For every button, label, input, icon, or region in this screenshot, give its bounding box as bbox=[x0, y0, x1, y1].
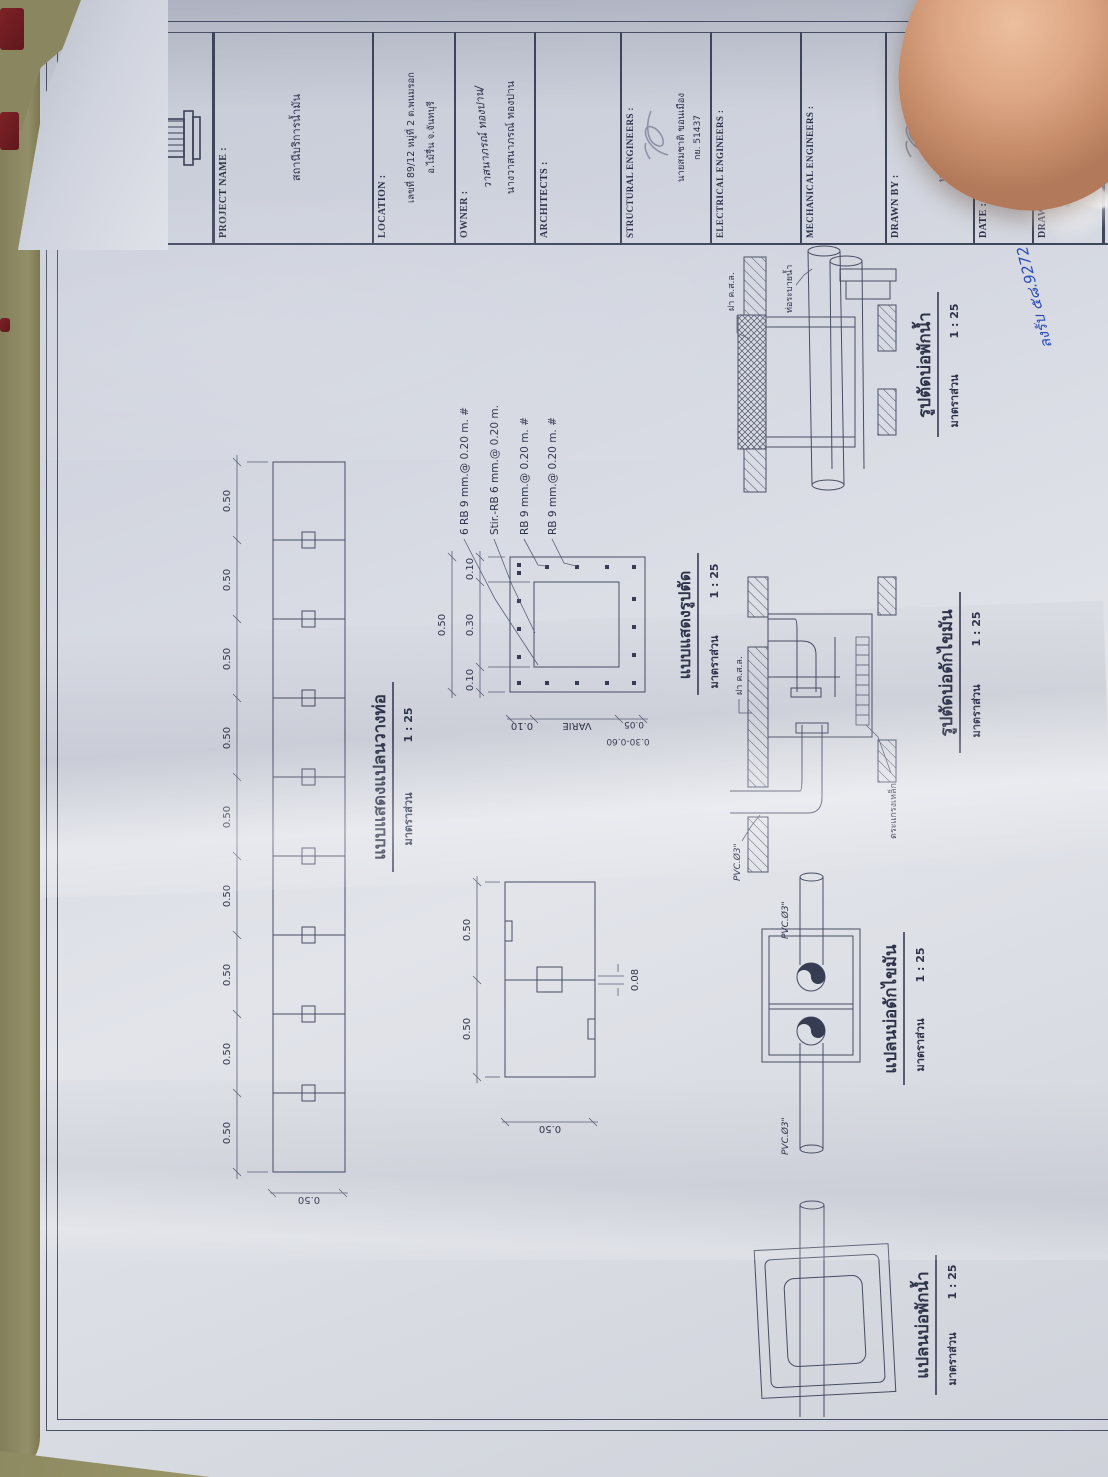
svg-text:RB 9 mm.@ 0.20 m. #: RB 9 mm.@ 0.20 m. # bbox=[519, 417, 531, 535]
svg-text:0.50: 0.50 bbox=[437, 614, 448, 636]
handwritten-note: ลงรับ ๕๘.9272 bbox=[1013, 244, 1056, 350]
svg-text:0.50: 0.50 bbox=[222, 569, 233, 591]
red-object-on-table bbox=[0, 112, 19, 150]
svg-text:0.10: 0.10 bbox=[511, 720, 533, 731]
svg-text:ฝา ค.ส.ล.: ฝา ค.ส.ล. bbox=[735, 656, 745, 695]
figure-sump-section: ฝา ค.ส.ล. ท่อระบายน้ำ รูปตัดบ่อพักน้ำ มา… bbox=[727, 246, 961, 492]
photo-of-drawing: PROJECT NAME : สถานีบริการน้ำมัน LOCATIO… bbox=[0, 0, 1108, 1477]
svg-text:0.50: 0.50 bbox=[298, 1194, 320, 1205]
svg-text:Stir.-RB 6 mm.@ 0.20 m.: Stir.-RB 6 mm.@ 0.20 m. bbox=[489, 405, 501, 535]
svg-text:แบบแสดงรูปตัด: แบบแสดงรูปตัด bbox=[675, 571, 696, 679]
svg-text:1 : 25: 1 : 25 bbox=[970, 611, 983, 646]
svg-text:ตระแกรงเหล็ก: ตระแกรงเหล็ก bbox=[886, 783, 899, 839]
svg-text:แบบแสดงแปลนวางท่อ: แบบแสดงแปลนวางท่อ bbox=[370, 694, 390, 860]
svg-text:0.05: 0.05 bbox=[624, 719, 644, 729]
svg-text:0.50: 0.50 bbox=[222, 727, 233, 749]
svg-text:ฝา ค.ส.ล.: ฝา ค.ส.ล. bbox=[727, 272, 737, 311]
svg-text:PVC.Ø3": PVC.Ø3" bbox=[732, 843, 743, 881]
figure-sump-plan: แปลนบ่อพักน้ำ มาตราส่วน 1 : 25 bbox=[754, 1201, 959, 1417]
steel-grating bbox=[856, 637, 869, 725]
rebar-callouts: 6 RB 9 mm.@ 0.20 m. # Stir.-RB 6 mm.@ 0.… bbox=[459, 405, 576, 665]
svg-text:ท่อระบายน้ำ: ท่อระบายน้ำ bbox=[782, 265, 795, 313]
svg-text:แปลนบ่อพักน้ำ: แปลนบ่อพักน้ำ bbox=[909, 1271, 933, 1378]
svg-text:0.08: 0.08 bbox=[630, 969, 641, 991]
svg-text:0.50: 0.50 bbox=[222, 490, 233, 512]
svg-text:0.50: 0.50 bbox=[222, 1122, 233, 1144]
figure-rebar-section: 0.50 0.10 0.30 0.10 0.10 bbox=[437, 405, 721, 746]
svg-text:PVC.Ø3": PVC.Ø3" bbox=[780, 901, 791, 939]
svg-text:0.30: 0.30 bbox=[465, 614, 476, 636]
svg-text:0.50: 0.50 bbox=[222, 964, 233, 986]
red-object-on-table bbox=[0, 318, 10, 332]
svg-text:0.50: 0.50 bbox=[222, 885, 233, 907]
svg-text:0.50: 0.50 bbox=[462, 919, 473, 941]
svg-text:6 RB 9 mm.@ 0.20 m. #: 6 RB 9 mm.@ 0.20 m. # bbox=[459, 407, 471, 535]
svg-text:0.10: 0.10 bbox=[465, 669, 476, 691]
svg-text:0.10: 0.10 bbox=[465, 558, 476, 580]
svg-text:1 : 25: 1 : 25 bbox=[948, 303, 961, 338]
svg-text:รูปตัดบ่อพักน้ำ: รูปตัดบ่อพักน้ำ bbox=[911, 312, 936, 418]
svg-text:RB 9 mm.@ 0.20 m. #: RB 9 mm.@ 0.20 m. # bbox=[547, 417, 559, 535]
svg-text:1 : 25: 1 : 25 bbox=[708, 563, 721, 598]
svg-text:มาตราส่วน: มาตราส่วน bbox=[708, 635, 721, 689]
svg-text:มาตราส่วน: มาตราส่วน bbox=[946, 1332, 959, 1386]
svg-text:1 : 25: 1 : 25 bbox=[402, 707, 415, 742]
svg-text:มาตราส่วน: มาตราส่วน bbox=[402, 792, 415, 846]
figure-pipe-plan: 0.50 0.50 0.50 0.50 0.50 0.50 0.50 0.50 … bbox=[222, 455, 415, 1205]
drawing-sheet: PROJECT NAME : สถานีบริการน้ำมัน LOCATIO… bbox=[40, 13, 1108, 1437]
red-object-on-table bbox=[0, 8, 24, 50]
svg-text:0.50: 0.50 bbox=[222, 806, 233, 828]
svg-text:มาตราส่วน: มาตราส่วน bbox=[970, 684, 983, 738]
svg-text:0.50: 0.50 bbox=[222, 648, 233, 670]
svg-text:VARIE: VARIE bbox=[562, 720, 591, 731]
svg-text:0.50: 0.50 bbox=[462, 1018, 473, 1040]
svg-text:1 : 25: 1 : 25 bbox=[914, 947, 927, 982]
svg-text:แปลนบ่อดักไขมัน: แปลนบ่อดักไขมัน bbox=[880, 944, 901, 1073]
svg-text:มาตราส่วน: มาตราส่วน bbox=[914, 1018, 927, 1072]
figure-grease-trap-section: ฝา ค.ส.ล. PVC.Ø3" ตระแกรงเหล็ก รูปตัดบ่อ… bbox=[730, 577, 983, 881]
svg-text:มาตราส่วน: มาตราส่วน bbox=[948, 374, 961, 428]
svg-text:0.50: 0.50 bbox=[539, 1123, 561, 1134]
svg-text:1 : 25: 1 : 25 bbox=[946, 1264, 959, 1299]
svg-text:PVC.Ø3": PVC.Ø3" bbox=[780, 1117, 791, 1155]
figure-pipe-detail: 0.50 0.50 0.50 0.08 bbox=[462, 876, 641, 1134]
drawing-figures: 0.50 0.50 0.50 0.50 0.50 0.50 0.50 0.50 … bbox=[40, 13, 1108, 1437]
figure-grease-trap-plan: PVC.Ø3" PVC.Ø3" แปลนบ่อดักไขมัน มาตราส่ว… bbox=[762, 873, 927, 1155]
svg-text:รูปตัดบ่อดักไขมัน: รูปตัดบ่อดักไขมัน bbox=[936, 609, 958, 737]
svg-text:0.30-0.60: 0.30-0.60 bbox=[606, 736, 650, 746]
svg-text:0.50: 0.50 bbox=[222, 1043, 233, 1065]
